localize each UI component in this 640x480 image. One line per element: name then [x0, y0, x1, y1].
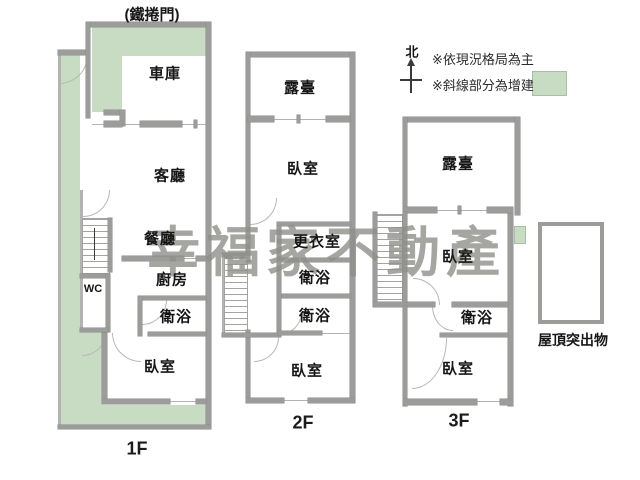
wall-line	[284, 400, 308, 401]
wall	[246, 398, 284, 403]
door-arc	[432, 306, 453, 331]
wall	[500, 399, 513, 405]
room-label-bedroom-rear-2f: 臥室	[291, 360, 323, 381]
floor-label-3f: 3F	[448, 411, 469, 432]
room-label-dressing-2f: 更衣室	[293, 231, 341, 252]
wall	[80, 328, 108, 332]
wall	[308, 398, 354, 403]
wall	[277, 294, 351, 298]
legend-note-addition: ※斜線部分為增建	[432, 75, 534, 94]
wall	[440, 333, 508, 337]
room-label-dining: 餐廳	[144, 228, 176, 249]
wall	[246, 52, 354, 57]
roof-protrusion-label: 屋頂突出物	[538, 330, 608, 350]
wall	[108, 218, 112, 272]
stair-arrow	[94, 228, 95, 260]
wall	[222, 333, 278, 337]
wall	[515, 117, 520, 215]
wall	[508, 212, 513, 406]
room-label-bath-rear-2f: 衛浴	[299, 305, 331, 326]
floor-label-2f: 2F	[292, 413, 313, 434]
wall	[148, 332, 206, 336]
north-label: 北	[405, 42, 418, 61]
legend-note-layout: ※依現況格局為主	[432, 49, 534, 68]
addition-area	[92, 27, 122, 112]
wall	[138, 296, 206, 300]
legend-addition-swatch	[532, 71, 567, 96]
wall	[86, 22, 90, 118]
wall-line	[322, 333, 351, 334]
wall	[403, 117, 520, 122]
staircase	[82, 218, 110, 274]
wall	[102, 399, 170, 404]
wall-line	[58, 50, 61, 429]
door-arc	[83, 190, 110, 217]
door-arc	[254, 337, 279, 362]
wall	[246, 330, 250, 403]
wall-line	[477, 401, 500, 402]
floorplan-page: (鐵捲門) 車庫 客廳 餐廳 廚房 WC 衛浴 臥室 1F	[0, 0, 640, 480]
room-label-garage: 車庫	[149, 63, 181, 84]
room-label-bath-front-2f: 衛浴	[299, 267, 331, 288]
wall	[403, 306, 407, 406]
wall	[104, 121, 122, 127]
room-label-kitchen: 廚房	[156, 269, 188, 290]
wall	[297, 115, 300, 123]
roof-protrusion-box	[538, 222, 604, 324]
room-label-terrace-3f: 露臺	[442, 153, 474, 174]
wall-line	[170, 401, 196, 402]
room-label-living: 客廳	[154, 165, 186, 186]
door-arc	[112, 333, 141, 362]
wall	[58, 50, 88, 55]
room-label-bedroom-1f: 臥室	[144, 356, 176, 377]
wall	[196, 399, 206, 404]
wall	[403, 399, 477, 405]
room-label-bedroom-front-3f: 臥室	[442, 246, 474, 267]
north-arrow-icon	[400, 79, 422, 81]
wall	[326, 116, 350, 122]
room-label-terrace-2f: 露臺	[284, 77, 316, 98]
wall	[102, 333, 107, 403]
addition-area	[514, 226, 526, 244]
wall	[403, 117, 407, 212]
wall	[278, 331, 322, 335]
wall	[106, 274, 110, 332]
room-label-wc: WC	[84, 283, 102, 295]
wall	[194, 120, 197, 128]
door-arc	[59, 55, 88, 84]
wall	[248, 116, 274, 122]
roller-door-note: (鐵捲門)	[125, 4, 180, 25]
addition-area	[61, 405, 206, 425]
room-label-bath-1f: 衛浴	[160, 306, 192, 327]
room-label-bedroom-front-2f: 臥室	[287, 158, 319, 179]
wall	[140, 121, 182, 127]
room-label-bedroom-rear-3f: 臥室	[442, 358, 474, 379]
wall	[138, 296, 142, 336]
wall	[58, 425, 211, 429]
floor-label-1f: 1F	[126, 439, 147, 460]
room-label-bath-3f: 衛浴	[461, 307, 493, 328]
